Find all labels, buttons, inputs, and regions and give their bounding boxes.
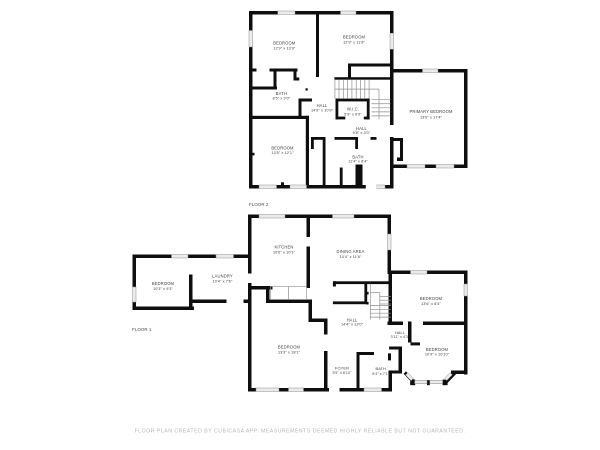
svg-text:5'5" x 6'10": 5'5" x 6'10" <box>333 371 353 375</box>
svg-text:13'6" x 8'4": 13'6" x 8'4" <box>421 302 441 306</box>
svg-text:9'8" x 3'0": 9'8" x 3'0" <box>353 131 371 135</box>
svg-text:13'5" x 12'1": 13'5" x 12'1" <box>271 151 294 155</box>
svg-text:HALL: HALL <box>317 103 328 108</box>
svg-text:BEDROOM: BEDROOM <box>273 40 296 45</box>
svg-text:BEDROOM: BEDROOM <box>426 347 449 352</box>
svg-text:11'4" x 8'4": 11'4" x 8'4" <box>348 159 368 163</box>
svg-text:BEDROOM: BEDROOM <box>152 281 175 286</box>
svg-text:13'6" x 17'4": 13'6" x 17'4" <box>420 115 443 119</box>
svg-text:BATH: BATH <box>276 91 287 96</box>
svg-text:BATH: BATH <box>375 366 386 371</box>
svg-text:10'4" x 7'6": 10'4" x 7'6" <box>213 280 233 284</box>
svg-text:12'9" x 13'9": 12'9" x 13'9" <box>273 46 296 50</box>
svg-text:10'9" x 10'10": 10'9" x 10'10" <box>425 353 450 357</box>
svg-text:14'4" x 13'0": 14'4" x 13'0" <box>341 323 364 327</box>
svg-text:FOYER: FOYER <box>335 365 349 370</box>
svg-text:FLOOR PLAN CREATED BY CUBICASA: FLOOR PLAN CREATED BY CUBICASA APP. MEAS… <box>135 429 466 435</box>
svg-text:10'3" x 9'3": 10'3" x 9'3" <box>153 287 173 291</box>
svg-text:12'9" x 11'8": 12'9" x 11'8" <box>343 40 365 44</box>
svg-text:KITCHEN: KITCHEN <box>274 244 293 249</box>
svg-text:FLOOR 2: FLOOR 2 <box>249 202 269 207</box>
svg-text:BEDROOM: BEDROOM <box>420 296 443 301</box>
svg-text:10'6" x 10'1": 10'6" x 10'1" <box>273 250 296 254</box>
svg-text:BEDROOM: BEDROOM <box>271 146 294 151</box>
svg-text:13'3" x 18'1": 13'3" x 18'1" <box>278 350 301 354</box>
svg-text:8'5" x 9'0": 8'5" x 9'0" <box>273 96 291 100</box>
svg-text:W.I.C.: W.I.C. <box>347 107 359 112</box>
svg-text:BEDROOM: BEDROOM <box>343 34 366 39</box>
svg-text:14'9" x 10'9": 14'9" x 10'9" <box>311 109 334 113</box>
svg-text:3'11" x 4'3": 3'11" x 4'3" <box>391 335 410 339</box>
svg-text:FLOOR 1: FLOOR 1 <box>132 327 152 332</box>
svg-text:5'9" x 6'9": 5'9" x 6'9" <box>344 113 362 117</box>
svg-text:DINING AREA: DINING AREA <box>336 249 364 254</box>
svg-text:BEDROOM: BEDROOM <box>278 344 301 349</box>
svg-text:PRIMARY BEDROOM: PRIMARY BEDROOM <box>409 109 452 114</box>
svg-text:LAUNDRY: LAUNDRY <box>212 274 233 279</box>
svg-text:14'4" x 11'6": 14'4" x 11'6" <box>340 255 362 259</box>
svg-text:8'4" x 7'1": 8'4" x 7'1" <box>372 372 389 376</box>
